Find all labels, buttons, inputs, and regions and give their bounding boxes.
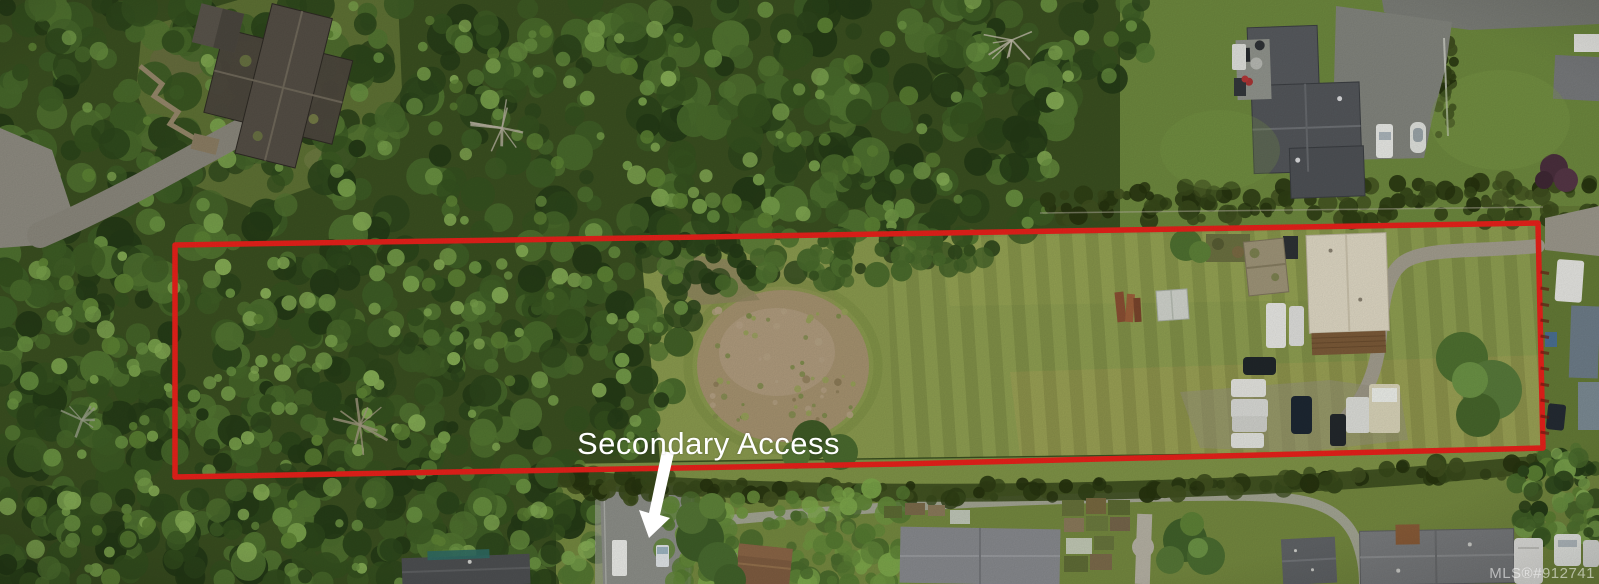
secondary-access-label: Secondary Access bbox=[577, 426, 840, 462]
mls-watermark: MLS®#912741 bbox=[1489, 565, 1595, 582]
vignette bbox=[0, 0, 1599, 584]
aerial-photo: Secondary Access MLS®#912741 bbox=[0, 0, 1599, 584]
aerial-photo-scene bbox=[0, 0, 1599, 584]
